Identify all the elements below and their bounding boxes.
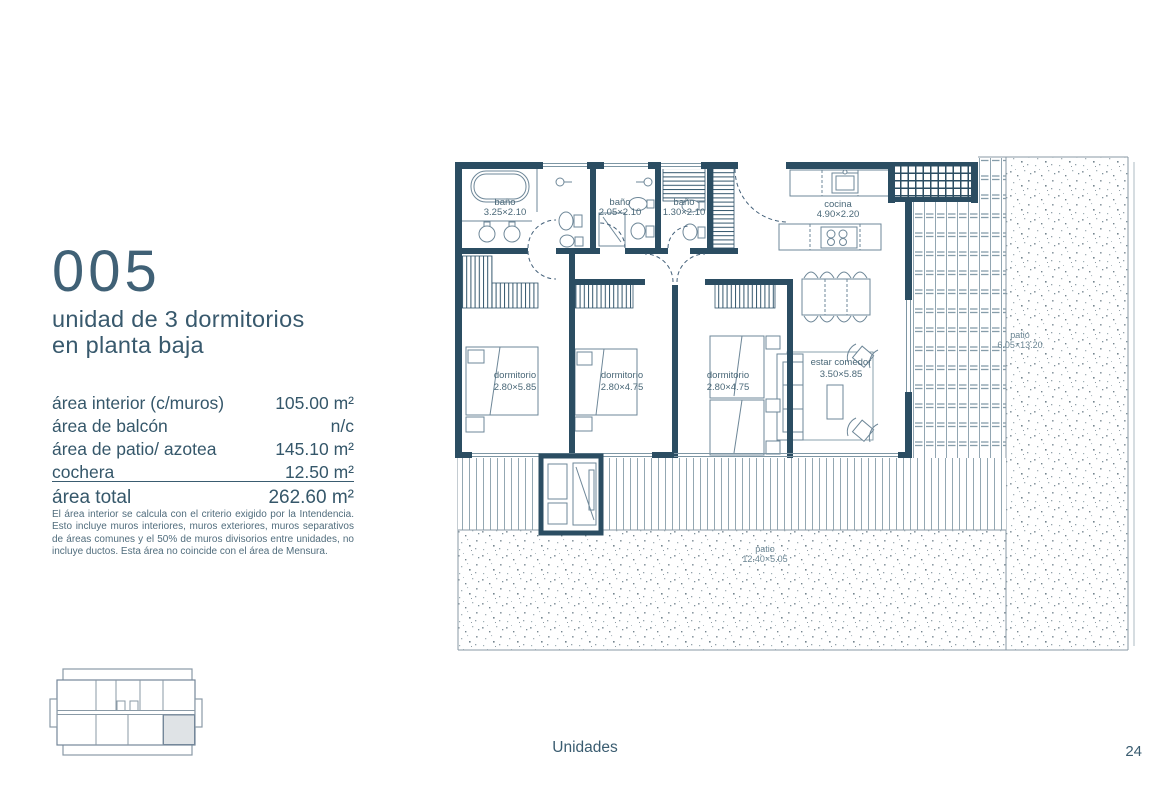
brochure-page: 005 unidad de 3 dormitorios en planta ba… [0, 0, 1170, 785]
sink [504, 226, 520, 242]
total-label: área total [52, 487, 131, 509]
room-dims-patio-right: 6.05×13.20 [997, 340, 1042, 350]
room-dims-bano1: 3.25×2.10 [484, 207, 527, 218]
room-label-estar: estar comedor [811, 357, 872, 368]
dining-table [802, 279, 870, 315]
parrillero [541, 456, 601, 533]
area-disclaimer: El área interior se calcula con el crite… [52, 509, 354, 558]
area-label: área de balcón [52, 415, 168, 438]
nightstand [466, 417, 484, 432]
room-label-dorm2: dormitorio [601, 370, 643, 381]
room-dims-bano2: 2.05×2.10 [599, 207, 642, 218]
nightstand [766, 441, 780, 454]
area-row-balcon: área de balcón n/c [52, 415, 354, 438]
area-value: 145.10 m² [275, 438, 354, 461]
patio-right-area [1006, 157, 1128, 650]
nightstand [766, 399, 780, 412]
bidet [560, 235, 574, 247]
total-divider [52, 481, 354, 482]
total-value: 262.60 m² [268, 487, 354, 509]
room-dims-estar: 3.50×5.85 [820, 369, 863, 380]
cooktop [821, 227, 857, 248]
unit-subtitle: unidad de 3 dormitorios en planta baja [52, 306, 305, 358]
sink [479, 226, 495, 242]
room-dims-dorm2: 2.80×4.75 [601, 382, 644, 393]
shower-mixer [644, 178, 652, 186]
dining-set [802, 272, 870, 322]
pergola-grid [895, 166, 971, 197]
area-label: área interior (c/muros) [52, 392, 224, 415]
room-dims-dorm1: 2.80×5.85 [494, 382, 537, 393]
key-plan-tab-right [195, 699, 202, 727]
room-dims-bano3: 1.30×2.10 [663, 207, 706, 218]
area-value: n/c [331, 415, 354, 438]
floor-plan: baño 3.25×2.10 baño 2.05×2.10 baño 1.30×… [450, 150, 1140, 655]
room-label-dorm3: dormitorio [707, 370, 749, 381]
footer-section-title: Unidades [0, 739, 1170, 757]
room-label-patio-bottom: patio [755, 544, 775, 554]
coffee-table [827, 385, 843, 419]
nightstand [766, 336, 780, 349]
page-number: 24 [1125, 743, 1142, 760]
toilet [631, 223, 645, 239]
shower-mixer [556, 178, 564, 186]
subtitle-line-2: en planta baja [52, 332, 305, 358]
room-dims-cocina: 4.90×2.20 [817, 209, 860, 220]
area-label: área de patio/ azotea [52, 438, 216, 461]
room-dims-patio-bottom: 12.40×5.05 [742, 554, 787, 564]
unit-number: 005 [52, 238, 161, 305]
key-plan-tab-left [50, 699, 57, 727]
area-row-interior: área interior (c/muros) 105.00 m² [52, 392, 354, 415]
subtitle-line-1: unidad de 3 dormitorios [52, 306, 305, 332]
area-table: área interior (c/muros) 105.00 m² área d… [52, 392, 354, 484]
toilet [559, 212, 573, 230]
patio-bottom-area [458, 530, 1006, 650]
room-dims-dorm3: 2.80×4.75 [707, 382, 750, 393]
area-value: 105.00 m² [275, 392, 354, 415]
area-total-row: área total 262.60 m² [52, 487, 354, 509]
area-row-patio: área de patio/ azotea 145.10 m² [52, 438, 354, 461]
nightstand [575, 417, 592, 431]
room-label-patio-right: patio [1010, 330, 1030, 340]
room-label-dorm1: dormitorio [494, 370, 536, 381]
